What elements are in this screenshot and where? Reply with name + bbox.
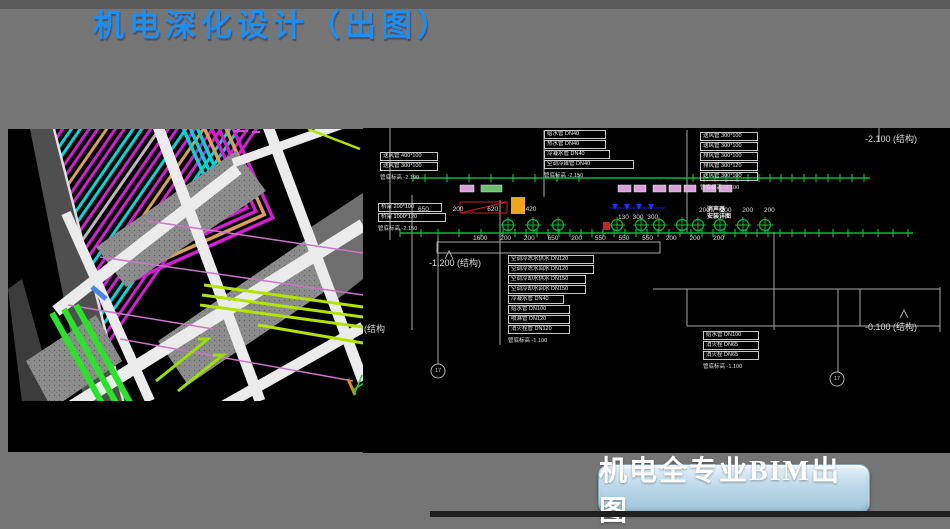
ladder-row: 送风管 400*100 [380,152,438,161]
ladder-row: 排风管 300*120 [700,162,758,171]
cad-gridlines [390,128,940,372]
ladder-row: 送风管 300*100 [700,132,758,141]
ladder-row: 热水管 DN40 [544,140,606,149]
ladder-row: 空调冷冻水供水 DN120 [508,255,594,264]
bim-3d-view-image[interactable] [8,129,363,452]
pipe-label-ladder-a: 送风管 400*100送风管 300*100管底标高 -2.100 [380,152,438,181]
ladder-footer: 管底标高 -2.100 [380,172,438,181]
pipe-label-ladder-c: 给水管 DN40热水管 DN40冷凝水管 DN40空调冷媒管 DN40管底标高 … [544,130,634,179]
ladder-row: 送风管 300*100 [380,162,438,171]
ladder-row: 排风管 300*100 [700,152,758,161]
silencer-note: 消声器 安装详图 [707,207,731,221]
bottom-strip [430,511,950,517]
ladder-row: 消火栓 DN65 [703,341,759,350]
ladder-row: 给水管 DN100 [508,305,570,314]
ladder-row: 给水管 DN100 [703,331,759,340]
blue-flow-arrows [610,204,665,210]
ladder-row: 桥架 200*100 [378,203,442,212]
pipe-label-ladder-e: 空调冷冻水供水 DN120空调冷冻水回水 DN120空调冷却水供水 DN150空… [508,255,594,344]
ladder-row: 送风管 300*100 [700,172,758,181]
ladder-row: 空调冷却水供水 DN150 [508,275,586,284]
bottom-black-band [8,401,363,452]
ladder-row: 消火栓 DN65 [703,351,759,360]
ladder-footer: 管底标高 -1.100 [703,361,759,370]
elevation-label: -2.100 (结构) [865,132,917,145]
ladder-row: 送风管 300*100 [700,142,758,151]
dimension-row: 130 300 300 [618,214,658,221]
ladder-footer: 管底标高 -2.100 [700,182,758,191]
ladder-row: 冷凝水管 DN40 [508,295,564,304]
ladder-row: 冷凝水管 DN40 [544,150,610,159]
ladder-row: 桥架 1000*120 [378,213,446,222]
pipe-label-ladder-d: 送风管 300*100送风管 300*100排风管 300*100排风管 300… [700,132,758,191]
slide-title: 机电深化设计（出图） [93,0,453,42]
ladder-row: 空调冷却水回水 DN150 [508,285,586,294]
ladder-row: 消火栓管 DN120 [508,325,570,334]
ladder-footer: 管底标高 -2.150 [544,170,634,179]
elevation-label: -1.200 (结构) [429,256,481,269]
pipe-label-ladder-b: 桥架 200*100桥架 1000*120管底标高 -2.150 [378,203,446,232]
ladder-footer: 管底标高 -1.100 [508,335,594,344]
ladder-row: 空调冷冻水回水 DN120 [508,265,594,274]
elevation-label: -0.100 (结构) [865,320,917,333]
bim-output-badge-button[interactable]: 机电全专业BIM出图 [598,464,870,514]
grid-bubble-label: 17 [431,368,445,374]
pipe-label-ladder-f: 给水管 DN100消火栓 DN65消火栓 DN65管底标高 -1.100 [703,331,759,370]
dimension-row: 1600 200 200 650 200 550 550 550 200 200… [473,235,724,242]
ladder-row: 喷淋管 DN120 [508,315,570,324]
ladder-row: 空调冷媒管 DN40 [544,160,634,169]
ladder-footer: 管底标高 -2.150 [378,223,446,232]
elevation-label-partial: (结构 [364,322,385,335]
cad-drawing-image[interactable]: -2.100 (结构) -1.200 (结构) -0.100 (结构) (结构 … [363,128,950,453]
ladder-row: 给水管 DN40 [544,130,606,139]
bim-3d-render [8,129,363,452]
grid-bubble-label: 17 [830,376,844,382]
damper-symbols [460,185,732,192]
cad-linework [363,128,950,453]
red-device-symbol [603,222,610,230]
